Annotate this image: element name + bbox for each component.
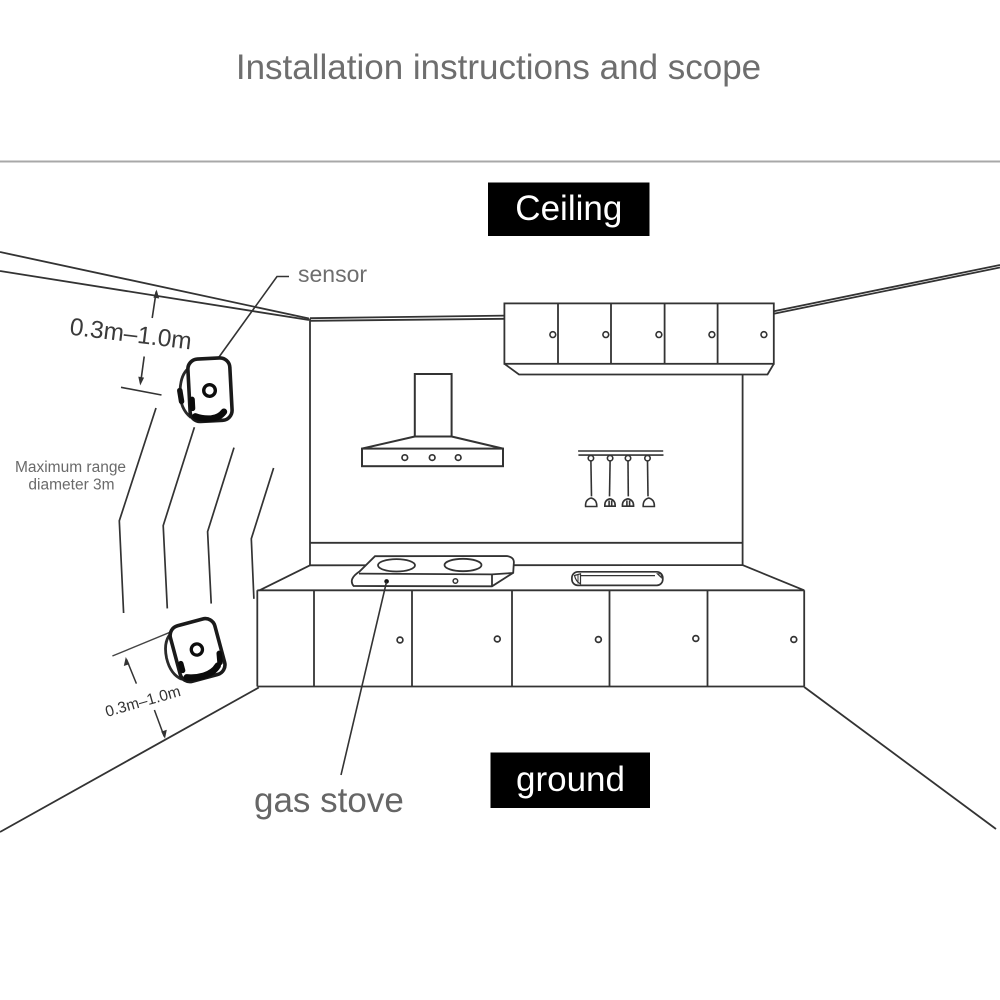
svg-text:Maximum range: Maximum range — [15, 459, 126, 476]
svg-text:diameter 3m: diameter 3m — [28, 477, 114, 494]
svg-text:0.3m–1.0m: 0.3m–1.0m — [68, 314, 193, 356]
svg-text:Ceiling: Ceiling — [515, 189, 622, 228]
svg-text:ground: ground — [516, 760, 625, 799]
svg-text:0.3m–1.0m: 0.3m–1.0m — [103, 683, 182, 721]
svg-text:gas stove: gas stove — [254, 781, 404, 820]
svg-text:sensor: sensor — [298, 261, 367, 287]
svg-text:Installation instructions and: Installation instructions and scope — [236, 48, 761, 87]
